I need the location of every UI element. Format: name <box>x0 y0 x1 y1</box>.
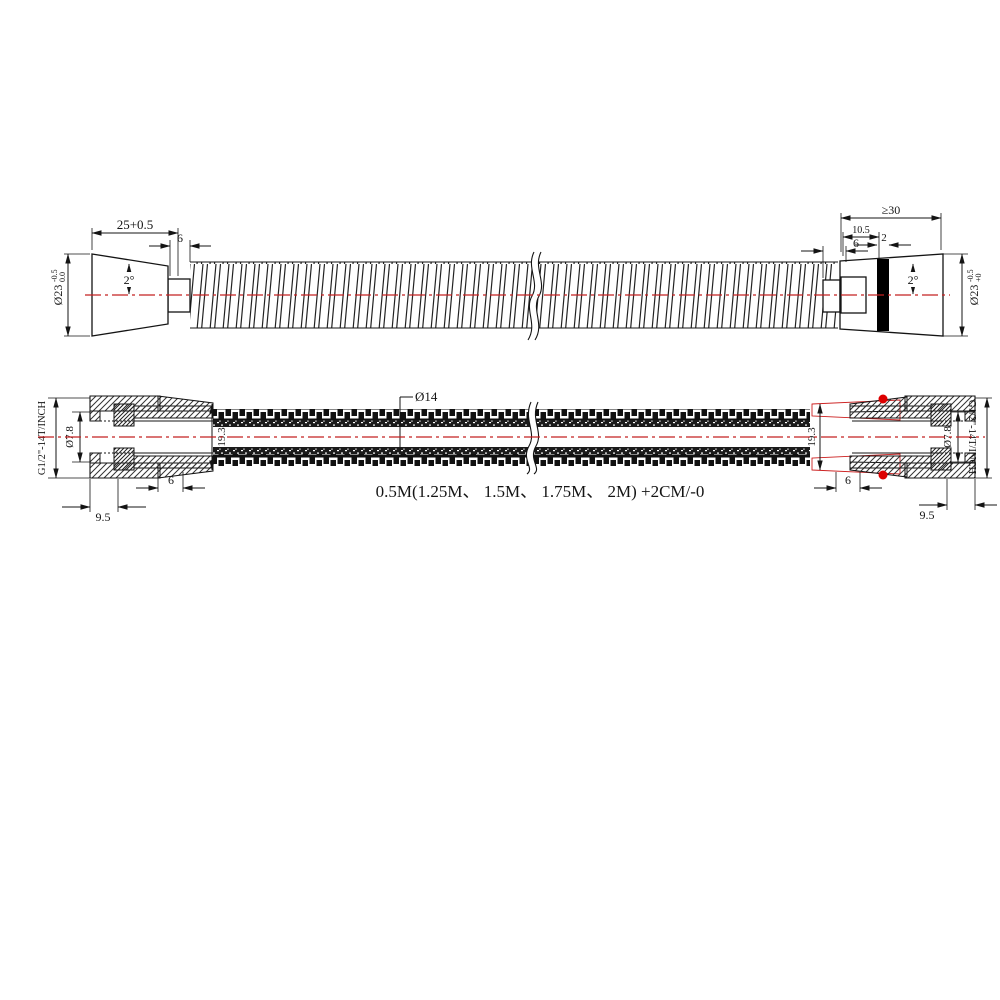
dim-taper-left-label: 2° <box>124 273 135 287</box>
red-seal-dot-bottom <box>879 471 888 480</box>
dim-thread-right: G1/2"-14T/INCH <box>966 398 992 478</box>
dim-dia-right-sub: +0 <box>974 273 983 282</box>
dim-band-width-label: 2 <box>881 232 887 244</box>
dim-nut-left-label: 9.5 <box>96 510 111 524</box>
dim-dia-right-label: Ø23 <box>967 285 981 306</box>
drawing-svg: 25+0.5 6 2° Ø23 -0.5 0.0 <box>0 0 1000 1000</box>
dim-nut-right: 9.5 <box>919 479 997 522</box>
dim-inner-dia-label: Ø14 <box>415 389 438 404</box>
dim-nut-left: 9.5 <box>62 479 146 524</box>
dim-collar-right-label: 6 <box>853 236 859 250</box>
dim-insert-right-label: 6 <box>845 473 851 487</box>
dim-dia-left-sub: 0.0 <box>58 272 67 282</box>
length-note: 0.5M(1.25M、 1.5M、 1.75M、 2M) +2CM/-0 <box>376 482 705 501</box>
dim-length-left-label: 25+0.5 <box>117 217 154 232</box>
external-view: 25+0.5 6 2° Ø23 -0.5 0.0 <box>50 203 983 340</box>
dim-insert-right: 6 <box>814 472 882 492</box>
dim-thread-left-label: G1/2"-14T/INCH <box>37 400 48 475</box>
red-seal-dot-top <box>879 395 888 404</box>
left-cone-connector <box>92 254 168 336</box>
right-collar <box>823 280 840 312</box>
dim-dia-left-label: Ø23 <box>51 285 65 306</box>
dim-offset-right: 10.5 <box>843 225 879 258</box>
section-view: G1/2"-14T/INCH Ø7.8 19.3 19.3 <box>37 389 997 524</box>
dim-insert-left-label: 6 <box>168 473 174 487</box>
dim-taper-right-label: 2° <box>908 273 919 287</box>
dim-min-length-label: ≥30 <box>882 203 901 217</box>
dim-offset-right-label: 10.5 <box>852 225 870 236</box>
shower-hose-technical-drawing: 25+0.5 6 2° Ø23 -0.5 0.0 <box>0 0 1000 1000</box>
dim-dia-left: Ø23 -0.5 0.0 <box>50 254 90 336</box>
dim-nut-right-label: 9.5 <box>920 508 935 522</box>
dim-collar-left-label: 6 <box>177 231 183 245</box>
